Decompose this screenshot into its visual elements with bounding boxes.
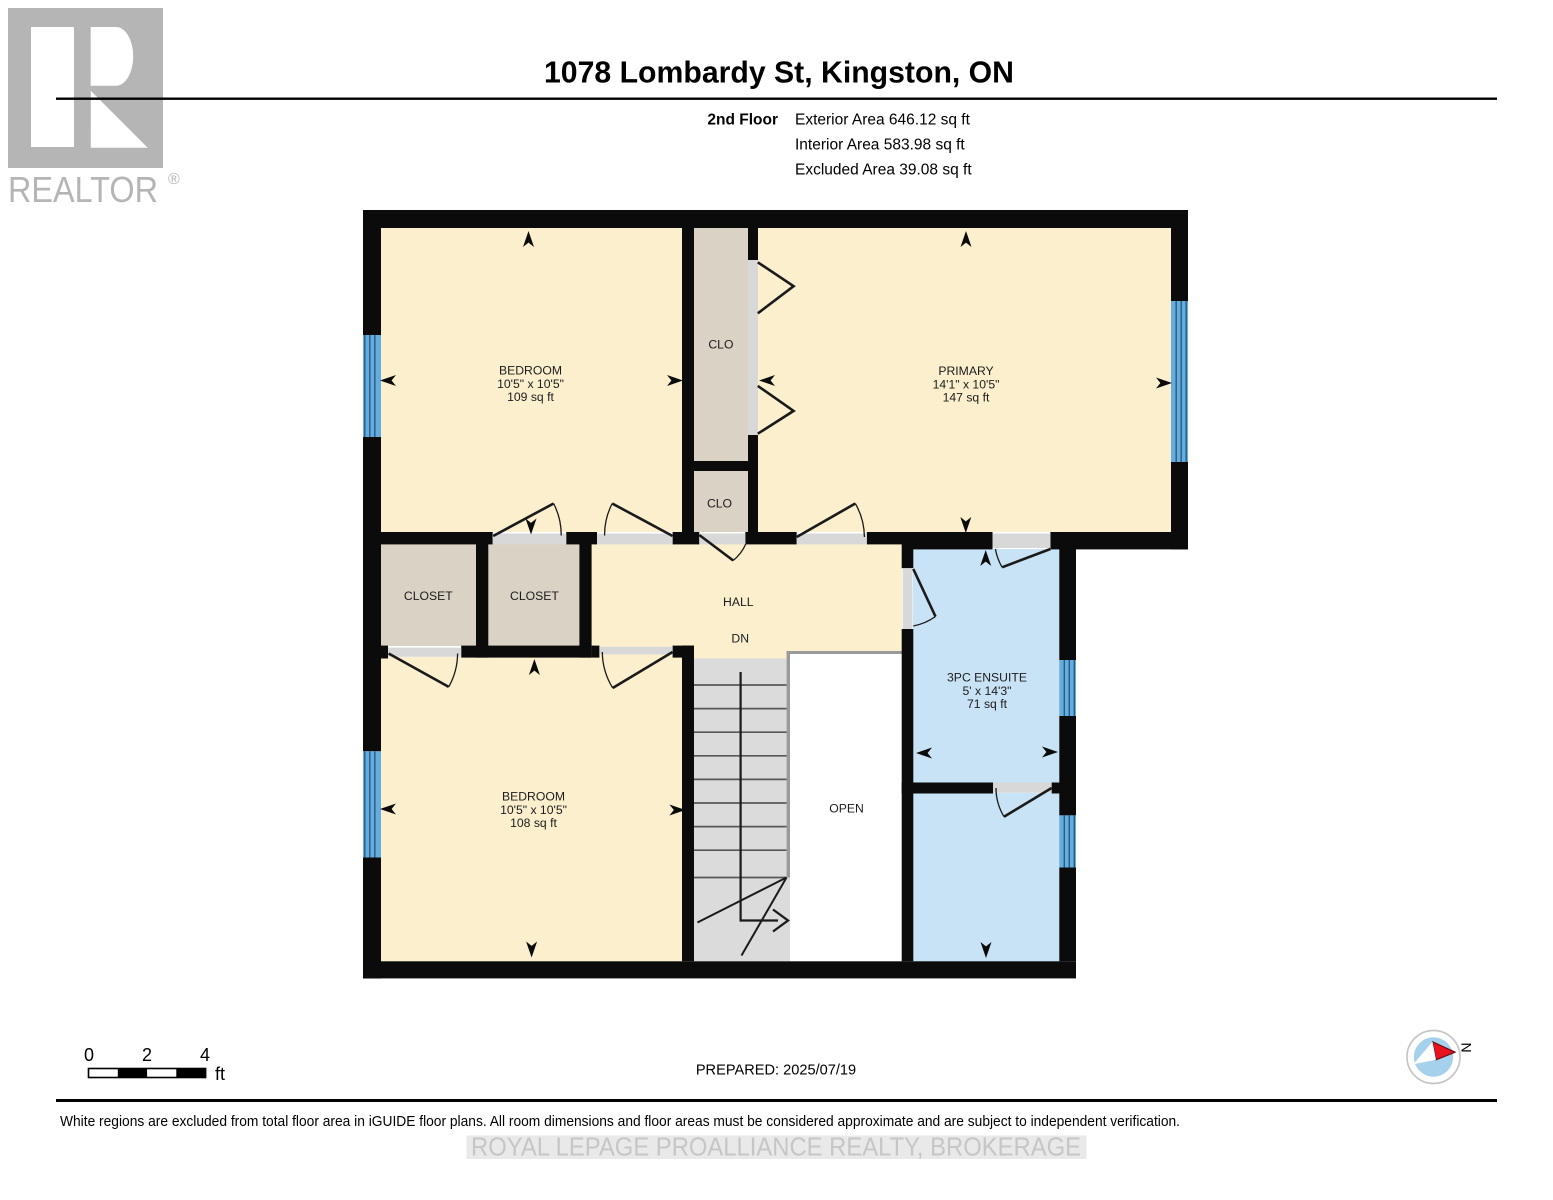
svg-text:BEDROOM: BEDROOM	[502, 790, 565, 804]
svg-text:CLO: CLO	[707, 497, 732, 511]
svg-text:0: 0	[84, 1045, 94, 1065]
svg-text:CLOSET: CLOSET	[404, 589, 453, 603]
svg-text:CLOSET: CLOSET	[510, 589, 559, 603]
svg-text:5' x 14'3": 5' x 14'3"	[963, 684, 1012, 698]
svg-text:2: 2	[142, 1045, 152, 1065]
svg-text:2nd Floor: 2nd Floor	[707, 112, 778, 129]
svg-text:HALL: HALL	[723, 595, 754, 609]
svg-text:3PC ENSUITE: 3PC ENSUITE	[947, 671, 1027, 685]
svg-text:BEDROOM: BEDROOM	[499, 364, 562, 378]
svg-text:OPEN: OPEN	[829, 802, 864, 816]
svg-text:REALTOR: REALTOR	[8, 169, 158, 210]
svg-text:1078 Lombardy St, Kingston, ON: 1078 Lombardy St, Kingston, ON	[544, 56, 1014, 90]
svg-text:109 sq ft: 109 sq ft	[507, 390, 554, 404]
svg-text:Exterior Area 646.12 sq ft: Exterior Area 646.12 sq ft	[795, 112, 971, 129]
svg-text:ROYAL LEPAGE PROALLIANCE REALT: ROYAL LEPAGE PROALLIANCE REALTY, BROKERA…	[471, 1134, 1081, 1162]
svg-text:DN: DN	[731, 632, 749, 646]
svg-text:White regions are excluded fro: White regions are excluded from total fl…	[60, 1114, 1180, 1130]
svg-text:147 sq ft: 147 sq ft	[943, 391, 990, 405]
svg-text:4: 4	[200, 1045, 210, 1065]
svg-text:Interior Area 583.98 sq ft: Interior Area 583.98 sq ft	[795, 137, 965, 154]
svg-text:PRIMARY: PRIMARY	[938, 364, 993, 378]
svg-text:CLO: CLO	[708, 338, 733, 352]
svg-text:ft: ft	[215, 1064, 225, 1084]
svg-text:10'5" x 10'5": 10'5" x 10'5"	[497, 377, 564, 391]
svg-text:®: ®	[168, 171, 180, 188]
svg-text:108 sq ft: 108 sq ft	[510, 816, 557, 830]
svg-text:71 sq ft: 71 sq ft	[967, 697, 1008, 711]
svg-text:Excluded Area 39.08 sq ft: Excluded Area 39.08 sq ft	[795, 162, 972, 179]
svg-text:PREPARED: 2025/07/19: PREPARED: 2025/07/19	[696, 1063, 856, 1079]
svg-text:14'1" x 10'5": 14'1" x 10'5"	[933, 378, 1000, 392]
svg-text:N: N	[1459, 1042, 1475, 1052]
svg-text:10'5" x 10'5": 10'5" x 10'5"	[500, 803, 567, 817]
